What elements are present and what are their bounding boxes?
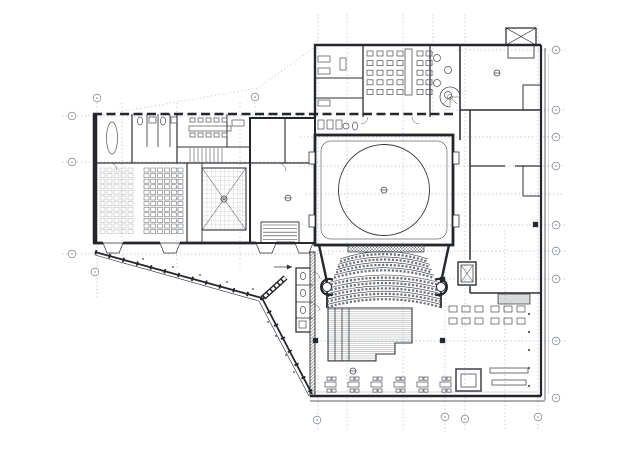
grid-axis-bubble xyxy=(68,250,76,258)
grid-axis-bubble xyxy=(552,133,560,141)
grid-axis-bubble xyxy=(552,247,560,255)
grid-axis-bubble xyxy=(552,162,560,170)
grid-axis-bubble xyxy=(552,221,560,229)
grid-axis-bubble xyxy=(552,337,560,345)
floor-plan-drawing xyxy=(0,0,640,452)
plan-geometry-layers xyxy=(93,28,549,401)
room-center-marker xyxy=(494,70,500,76)
grid-axis-bubble xyxy=(461,415,469,423)
grid-axis-bubble xyxy=(552,275,560,283)
grid-axis-bubble xyxy=(552,46,560,54)
drawing-page xyxy=(0,0,640,452)
grid-axis-bubble xyxy=(68,112,76,120)
room-center-marker xyxy=(350,368,356,374)
grid-axis-bubble xyxy=(552,394,560,402)
walls-interior xyxy=(93,45,541,332)
grid-axis-bubble xyxy=(534,413,542,421)
construction-line xyxy=(95,46,316,116)
room-center-marker xyxy=(285,195,291,201)
grid-axis-bubble xyxy=(91,268,99,276)
furniture xyxy=(107,49,531,392)
grid-axis-bubble xyxy=(251,93,259,101)
grid-axis-bubble xyxy=(313,416,321,424)
grid-axis-bubble xyxy=(68,158,76,166)
grid-axis-bubble xyxy=(93,94,101,102)
grid-axis-bubble xyxy=(441,413,449,421)
grid-axis-bubble xyxy=(552,106,560,114)
room-center-marker xyxy=(381,187,387,193)
canopy xyxy=(95,252,312,396)
